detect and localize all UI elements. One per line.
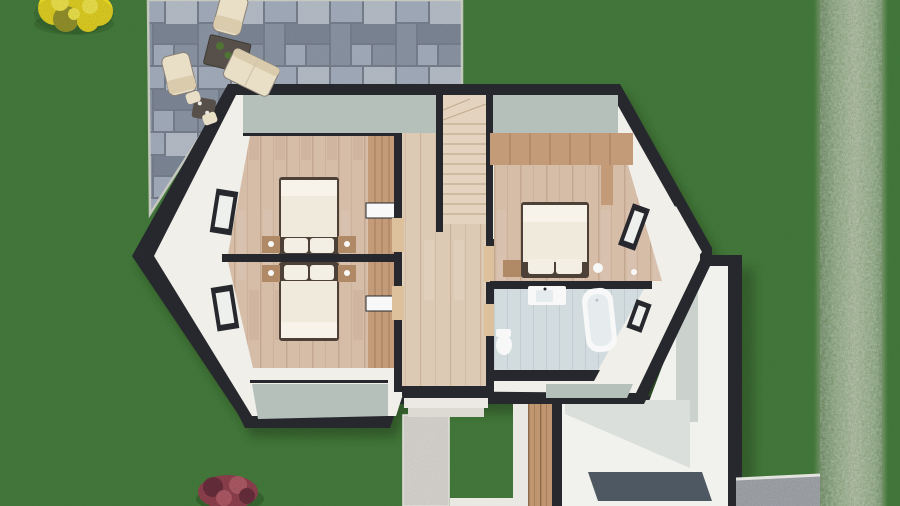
- tap: [544, 288, 547, 291]
- interior-door: [392, 218, 404, 252]
- boxwood-hedge: [816, 0, 886, 506]
- pillow: [284, 265, 308, 280]
- hall-wall-left: [394, 133, 402, 392]
- nightstand-decor: [344, 270, 350, 276]
- bedroom-top-left: [228, 136, 398, 256]
- nightstand-decor: [268, 241, 274, 247]
- annex-wall-left: [552, 396, 562, 506]
- roof-glazing-top: [243, 95, 618, 135]
- pillow: [284, 238, 308, 253]
- duvet-fold: [281, 180, 337, 196]
- nightstand-decor: [344, 241, 350, 247]
- nightstand-decor: [268, 270, 274, 276]
- pillow: [310, 265, 334, 280]
- bedroom-dividing-wall: [222, 254, 404, 262]
- washbasin: [528, 286, 566, 305]
- door-mat: [588, 472, 712, 501]
- hallway-landing: [392, 92, 496, 396]
- hedge-texture-dark: [820, 0, 882, 506]
- stairwell-wall-left: [436, 92, 443, 232]
- floorplan-render: [0, 0, 900, 506]
- toilet-bowl: [496, 335, 512, 355]
- walkway-texture: [403, 415, 449, 506]
- bathroom-wall-bottom: [490, 370, 600, 381]
- duvet-fold: [281, 322, 337, 338]
- duvet-fold: [523, 205, 587, 222]
- pillow: [528, 259, 554, 274]
- roof-glazing-bottom-right: [546, 384, 633, 398]
- bathroom-wall-top: [490, 281, 652, 289]
- decor-item: [631, 269, 637, 275]
- front-door-threshold: [402, 386, 488, 396]
- gravel-strip: [736, 475, 820, 506]
- entry-step-lower: [408, 408, 484, 417]
- annex-wall-right: [728, 255, 742, 506]
- pillow: [310, 238, 334, 253]
- white-edging-strip: [513, 400, 528, 506]
- wardrobe-return: [601, 165, 613, 205]
- basin: [536, 290, 553, 302]
- wall-shelf: [366, 203, 398, 218]
- render-stage: [0, 0, 900, 506]
- floor-vase: [593, 263, 603, 273]
- staircase: [436, 92, 493, 239]
- inner-wall-line-bottom: [250, 380, 388, 383]
- interior-door: [392, 286, 404, 320]
- pillow: [556, 259, 582, 274]
- toilet: [496, 329, 512, 355]
- timber-screen-wall: [528, 396, 552, 506]
- white-edging-bottom: [450, 498, 540, 506]
- bedroom-bottom-left: [228, 262, 398, 368]
- nightstand: [503, 260, 521, 277]
- house: [132, 84, 712, 428]
- wardrobe: [490, 133, 633, 165]
- stair-flight: [443, 95, 486, 224]
- yellow-shrub: [34, 0, 114, 35]
- entry-step-upper: [404, 398, 488, 408]
- stairwell-wall-right: [486, 92, 493, 239]
- roof-glazing-bottom: [252, 384, 388, 419]
